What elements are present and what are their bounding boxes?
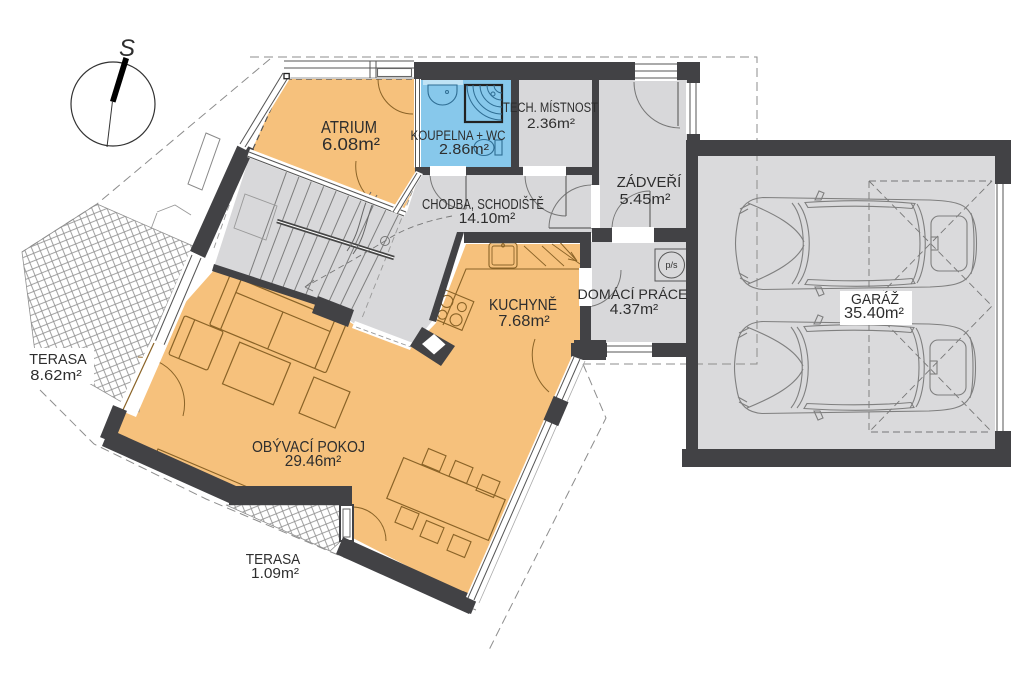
svg-text:TERASA: TERASA [29, 352, 87, 368]
svg-text:5.45m²: 5.45m² [620, 191, 671, 208]
svg-text:KUCHYNĚ: KUCHYNĚ [489, 297, 557, 314]
svg-text:1.09m²: 1.09m² [251, 566, 299, 582]
svg-text:6.08m²: 6.08m² [322, 134, 380, 154]
svg-text:p/s: p/s [665, 260, 678, 270]
svg-text:14.10m²: 14.10m² [459, 210, 516, 227]
svg-text:TECH. MÍSTNOST: TECH. MÍSTNOST [503, 100, 598, 115]
svg-text:2.86m²: 2.86m² [439, 142, 489, 158]
svg-text:7.68m²: 7.68m² [498, 313, 550, 330]
svg-text:2.36m²: 2.36m² [527, 115, 575, 131]
svg-text:4.37m²: 4.37m² [610, 302, 659, 318]
svg-text:ZÁDVEŘÍ: ZÁDVEŘÍ [617, 174, 682, 191]
svg-text:KOUPELNA + WC: KOUPELNA + WC [411, 128, 506, 143]
svg-text:29.46m²: 29.46m² [285, 453, 342, 470]
svg-text:DOMÁCÍ PRÁCE: DOMÁCÍ PRÁCE [578, 286, 688, 302]
svg-text:35.40m²: 35.40m² [844, 305, 904, 322]
svg-text:8.62m²: 8.62m² [30, 368, 82, 384]
svg-text:S: S [119, 35, 135, 62]
